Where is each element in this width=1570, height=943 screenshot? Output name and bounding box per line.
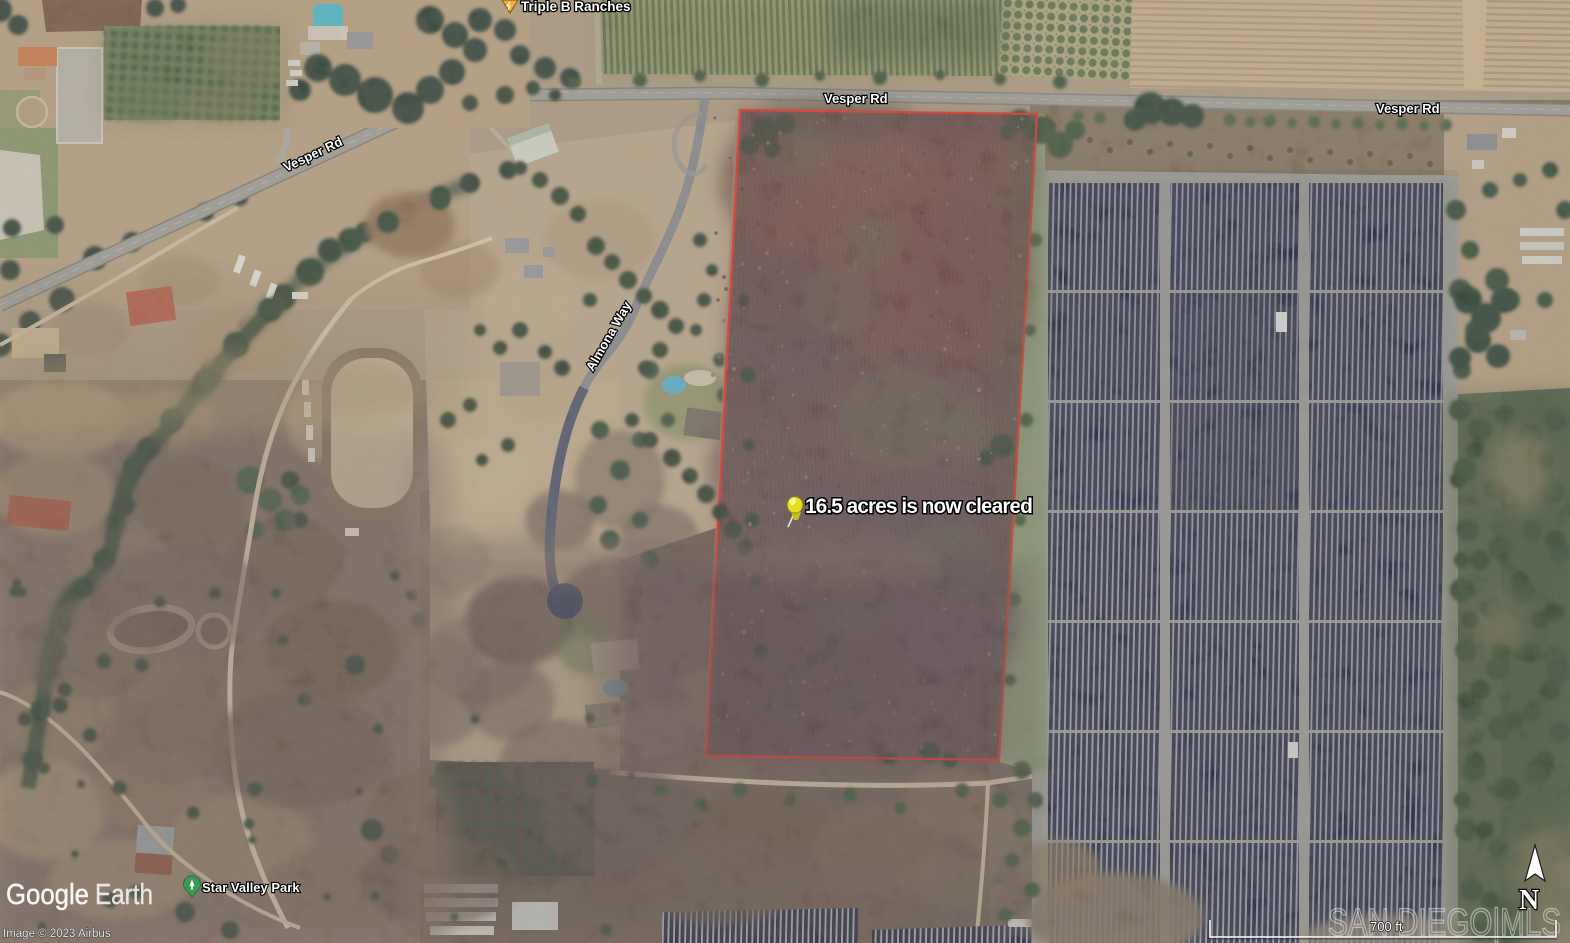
svg-text:700 ft: 700 ft: [1370, 919, 1403, 934]
svg-text:Google: Google: [6, 879, 89, 911]
svg-text:Vesper Rd: Vesper Rd: [824, 91, 888, 106]
svg-text:N: N: [1519, 885, 1539, 916]
svg-text:Triple B Ranches: Triple B Ranches: [521, 0, 631, 14]
svg-text:Image © 2023 Airbus: Image © 2023 Airbus: [3, 928, 111, 940]
svg-text:Earth: Earth: [95, 879, 153, 911]
svg-text:16.5 acres is now cleared: 16.5 acres is now cleared: [805, 495, 1033, 518]
svg-text:Star Valley Park: Star Valley Park: [202, 880, 300, 895]
svg-text:Vesper Rd: Vesper Rd: [1376, 101, 1440, 116]
